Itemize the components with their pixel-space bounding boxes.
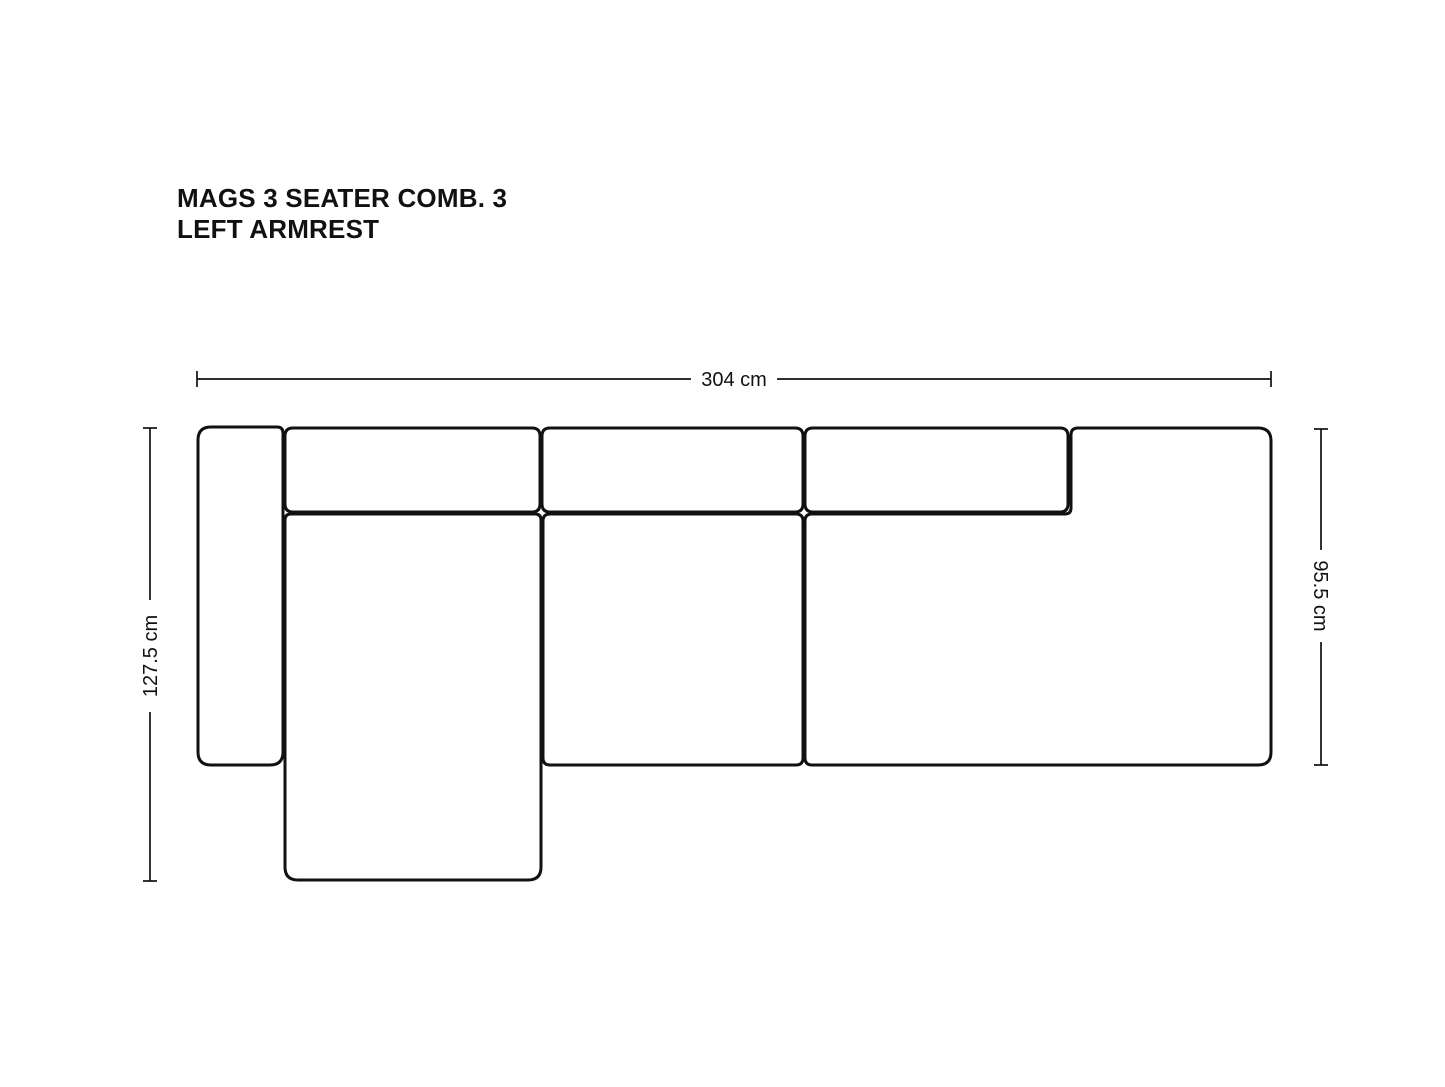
sofa-outline-group [198, 427, 1271, 880]
seat-depth-dim-label: 95.5 cm [1309, 560, 1331, 631]
sofa-piece-right-lounge-section [805, 428, 1271, 765]
page: MAGS 3 SEATER COMB. 3 LEFT ARMREST [0, 0, 1445, 1087]
sofa-dimension-drawing: 304 cm 127.5 cm 95.5 cm [0, 0, 1445, 1087]
sofa-piece-backrest-right [805, 428, 1068, 512]
sofa-piece-backrest-middle [542, 428, 803, 512]
dimension-lines-group [143, 371, 1328, 881]
sofa-piece-chaise-longue-seat [285, 514, 541, 880]
depth-total-dim-label: 127.5 cm [140, 615, 162, 697]
sofa-piece-backrest-left [285, 428, 540, 512]
width-dim-label: 304 cm [701, 369, 767, 391]
sofa-piece-middle-seat [543, 514, 803, 765]
sofa-piece-left-armrest [198, 427, 283, 765]
